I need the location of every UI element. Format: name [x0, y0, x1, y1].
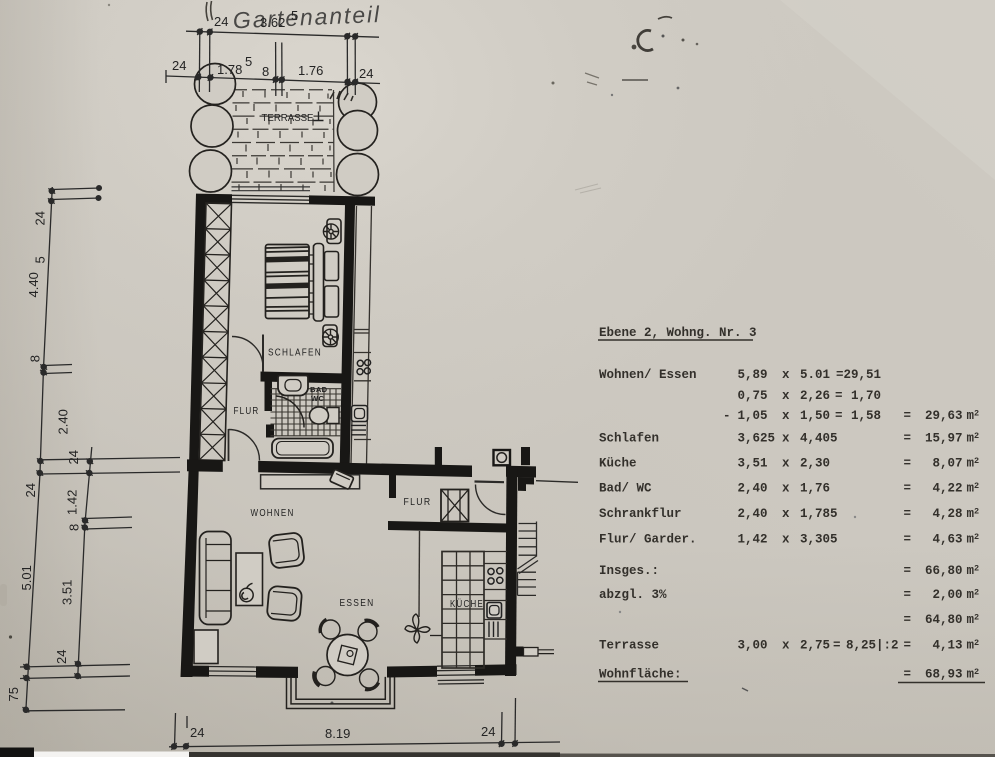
svg-text:Flur/ Garder.: Flur/ Garder. [599, 533, 697, 547]
svg-text:4,63: 4,63 [932, 533, 962, 547]
svg-text:Insges.:: Insges.: [599, 564, 659, 578]
svg-text:FLUR: FLUR [234, 405, 260, 417]
svg-text:=: = [904, 507, 912, 521]
svg-text:=: = [904, 613, 912, 627]
svg-text:2,26: 2,26 [800, 389, 830, 403]
svg-text:x: x [782, 533, 790, 547]
svg-text:Schrankflur: Schrankflur [599, 507, 682, 521]
svg-text:2,40: 2,40 [738, 482, 768, 496]
svg-text:1,70: 1,70 [851, 389, 881, 403]
svg-text:8.19: 8.19 [325, 726, 350, 741]
svg-text:=: = [904, 588, 912, 602]
svg-text:4,22: 4,22 [932, 482, 962, 496]
svg-text:TERRASSE: TERRASSE [262, 112, 314, 124]
svg-text:x: x [782, 368, 790, 382]
svg-text:Schlafen: Schlafen [599, 432, 659, 446]
svg-text:4,13: 4,13 [932, 639, 962, 653]
svg-text:2,40: 2,40 [738, 507, 768, 521]
svg-text:29,51: 29,51 [843, 368, 881, 382]
svg-text:Bad/ WC: Bad/ WC [599, 482, 652, 496]
svg-text:3.62: 3.62 [260, 15, 285, 30]
svg-text:=: = [904, 457, 912, 471]
svg-text:24: 24 [66, 450, 81, 464]
svg-text:2.40: 2.40 [56, 409, 71, 434]
svg-text:x: x [782, 432, 790, 446]
svg-text:=: = [836, 368, 844, 382]
svg-text:=: = [904, 639, 912, 653]
svg-text:x: x [782, 639, 790, 653]
svg-text:4.40: 4.40 [26, 272, 41, 297]
svg-text:1.78: 1.78 [217, 62, 242, 77]
svg-text:5: 5 [32, 256, 47, 264]
svg-text:4,28: 4,28 [932, 507, 962, 521]
svg-text:1,42: 1,42 [738, 533, 768, 547]
svg-text:FLUR: FLUR [404, 496, 432, 508]
svg-text:Küche: Küche [599, 457, 637, 471]
svg-text:=: = [833, 639, 841, 653]
svg-text:2,30: 2,30 [800, 457, 830, 471]
svg-text:2,75: 2,75 [800, 639, 830, 653]
svg-text:x: x [782, 409, 790, 423]
svg-text:24: 24 [481, 724, 495, 739]
svg-text:x: x [782, 482, 790, 496]
svg-text:Ebene 2, Wohng. Nr. 3: Ebene 2, Wohng. Nr. 3 [599, 326, 757, 340]
svg-text:WOHNEN: WOHNEN [251, 507, 295, 519]
svg-text:15,97: 15,97 [925, 432, 963, 446]
svg-text:=: = [904, 409, 912, 423]
svg-text:68,93: 68,93 [925, 668, 963, 682]
svg-text:x: x [782, 507, 790, 521]
svg-text:3,51: 3,51 [738, 457, 768, 471]
svg-text:5: 5 [291, 8, 298, 23]
svg-text:0,75: 0,75 [738, 389, 768, 403]
svg-text:8: 8 [262, 64, 269, 79]
svg-text:1,76: 1,76 [800, 482, 830, 496]
svg-text:Wohnfläche:: Wohnfläche: [599, 668, 682, 682]
svg-text:8: 8 [27, 355, 42, 362]
svg-text:1,785: 1,785 [800, 507, 838, 521]
svg-text:3.51: 3.51 [60, 580, 75, 605]
svg-text:Wohnen/ Essen: Wohnen/ Essen [599, 368, 697, 382]
svg-text:3,00: 3,00 [738, 639, 768, 653]
svg-text:SCHLAFEN: SCHLAFEN [268, 347, 322, 359]
svg-text:=: = [904, 482, 912, 496]
svg-text:8,25|:2: 8,25|:2 [846, 639, 899, 653]
svg-text:KÜCHE: KÜCHE [450, 598, 484, 610]
svg-text:24: 24 [172, 58, 186, 73]
svg-text:24: 24 [359, 66, 373, 81]
svg-text:1.42: 1.42 [64, 490, 79, 515]
svg-text:24: 24 [33, 211, 48, 225]
svg-text:5,89: 5,89 [738, 368, 768, 382]
svg-text:24: 24 [23, 483, 38, 497]
svg-text:8: 8 [67, 524, 82, 531]
svg-text:=: = [904, 564, 912, 578]
svg-text:1,58: 1,58 [851, 409, 881, 423]
svg-text:=: = [835, 409, 843, 423]
svg-text:1,05: 1,05 [738, 409, 768, 423]
svg-text:5.01: 5.01 [19, 565, 34, 590]
svg-text:=: = [835, 389, 843, 403]
svg-text:-: - [723, 409, 731, 423]
svg-text:BAD: BAD [310, 385, 328, 394]
svg-text:=: = [904, 533, 912, 547]
svg-text:5.01: 5.01 [800, 368, 830, 382]
svg-text:3,625: 3,625 [738, 432, 776, 446]
svg-text:1.76: 1.76 [298, 63, 323, 78]
svg-text:WC: WC [311, 394, 324, 403]
svg-text:24: 24 [190, 725, 204, 740]
svg-text:2,00: 2,00 [932, 588, 962, 602]
svg-text:8,07: 8,07 [932, 457, 962, 471]
svg-text:75: 75 [6, 687, 21, 701]
svg-text:=: = [904, 432, 912, 446]
svg-text:4,405: 4,405 [800, 432, 838, 446]
svg-text:24: 24 [214, 14, 228, 29]
svg-text:x: x [782, 457, 790, 471]
svg-text:64,80: 64,80 [925, 613, 963, 627]
svg-text:Terrasse: Terrasse [599, 639, 659, 653]
svg-text:24: 24 [54, 650, 69, 664]
svg-text:29,63: 29,63 [925, 409, 963, 423]
svg-text:abzgl. 3%: abzgl. 3% [599, 588, 667, 602]
svg-text:66,80: 66,80 [925, 564, 963, 578]
svg-text:ESSEN: ESSEN [340, 597, 375, 609]
svg-text:=: = [904, 668, 912, 682]
svg-text:5: 5 [245, 54, 252, 69]
svg-text:3,305: 3,305 [800, 533, 838, 547]
svg-text:x: x [782, 389, 790, 403]
svg-text:1,50: 1,50 [800, 409, 830, 423]
